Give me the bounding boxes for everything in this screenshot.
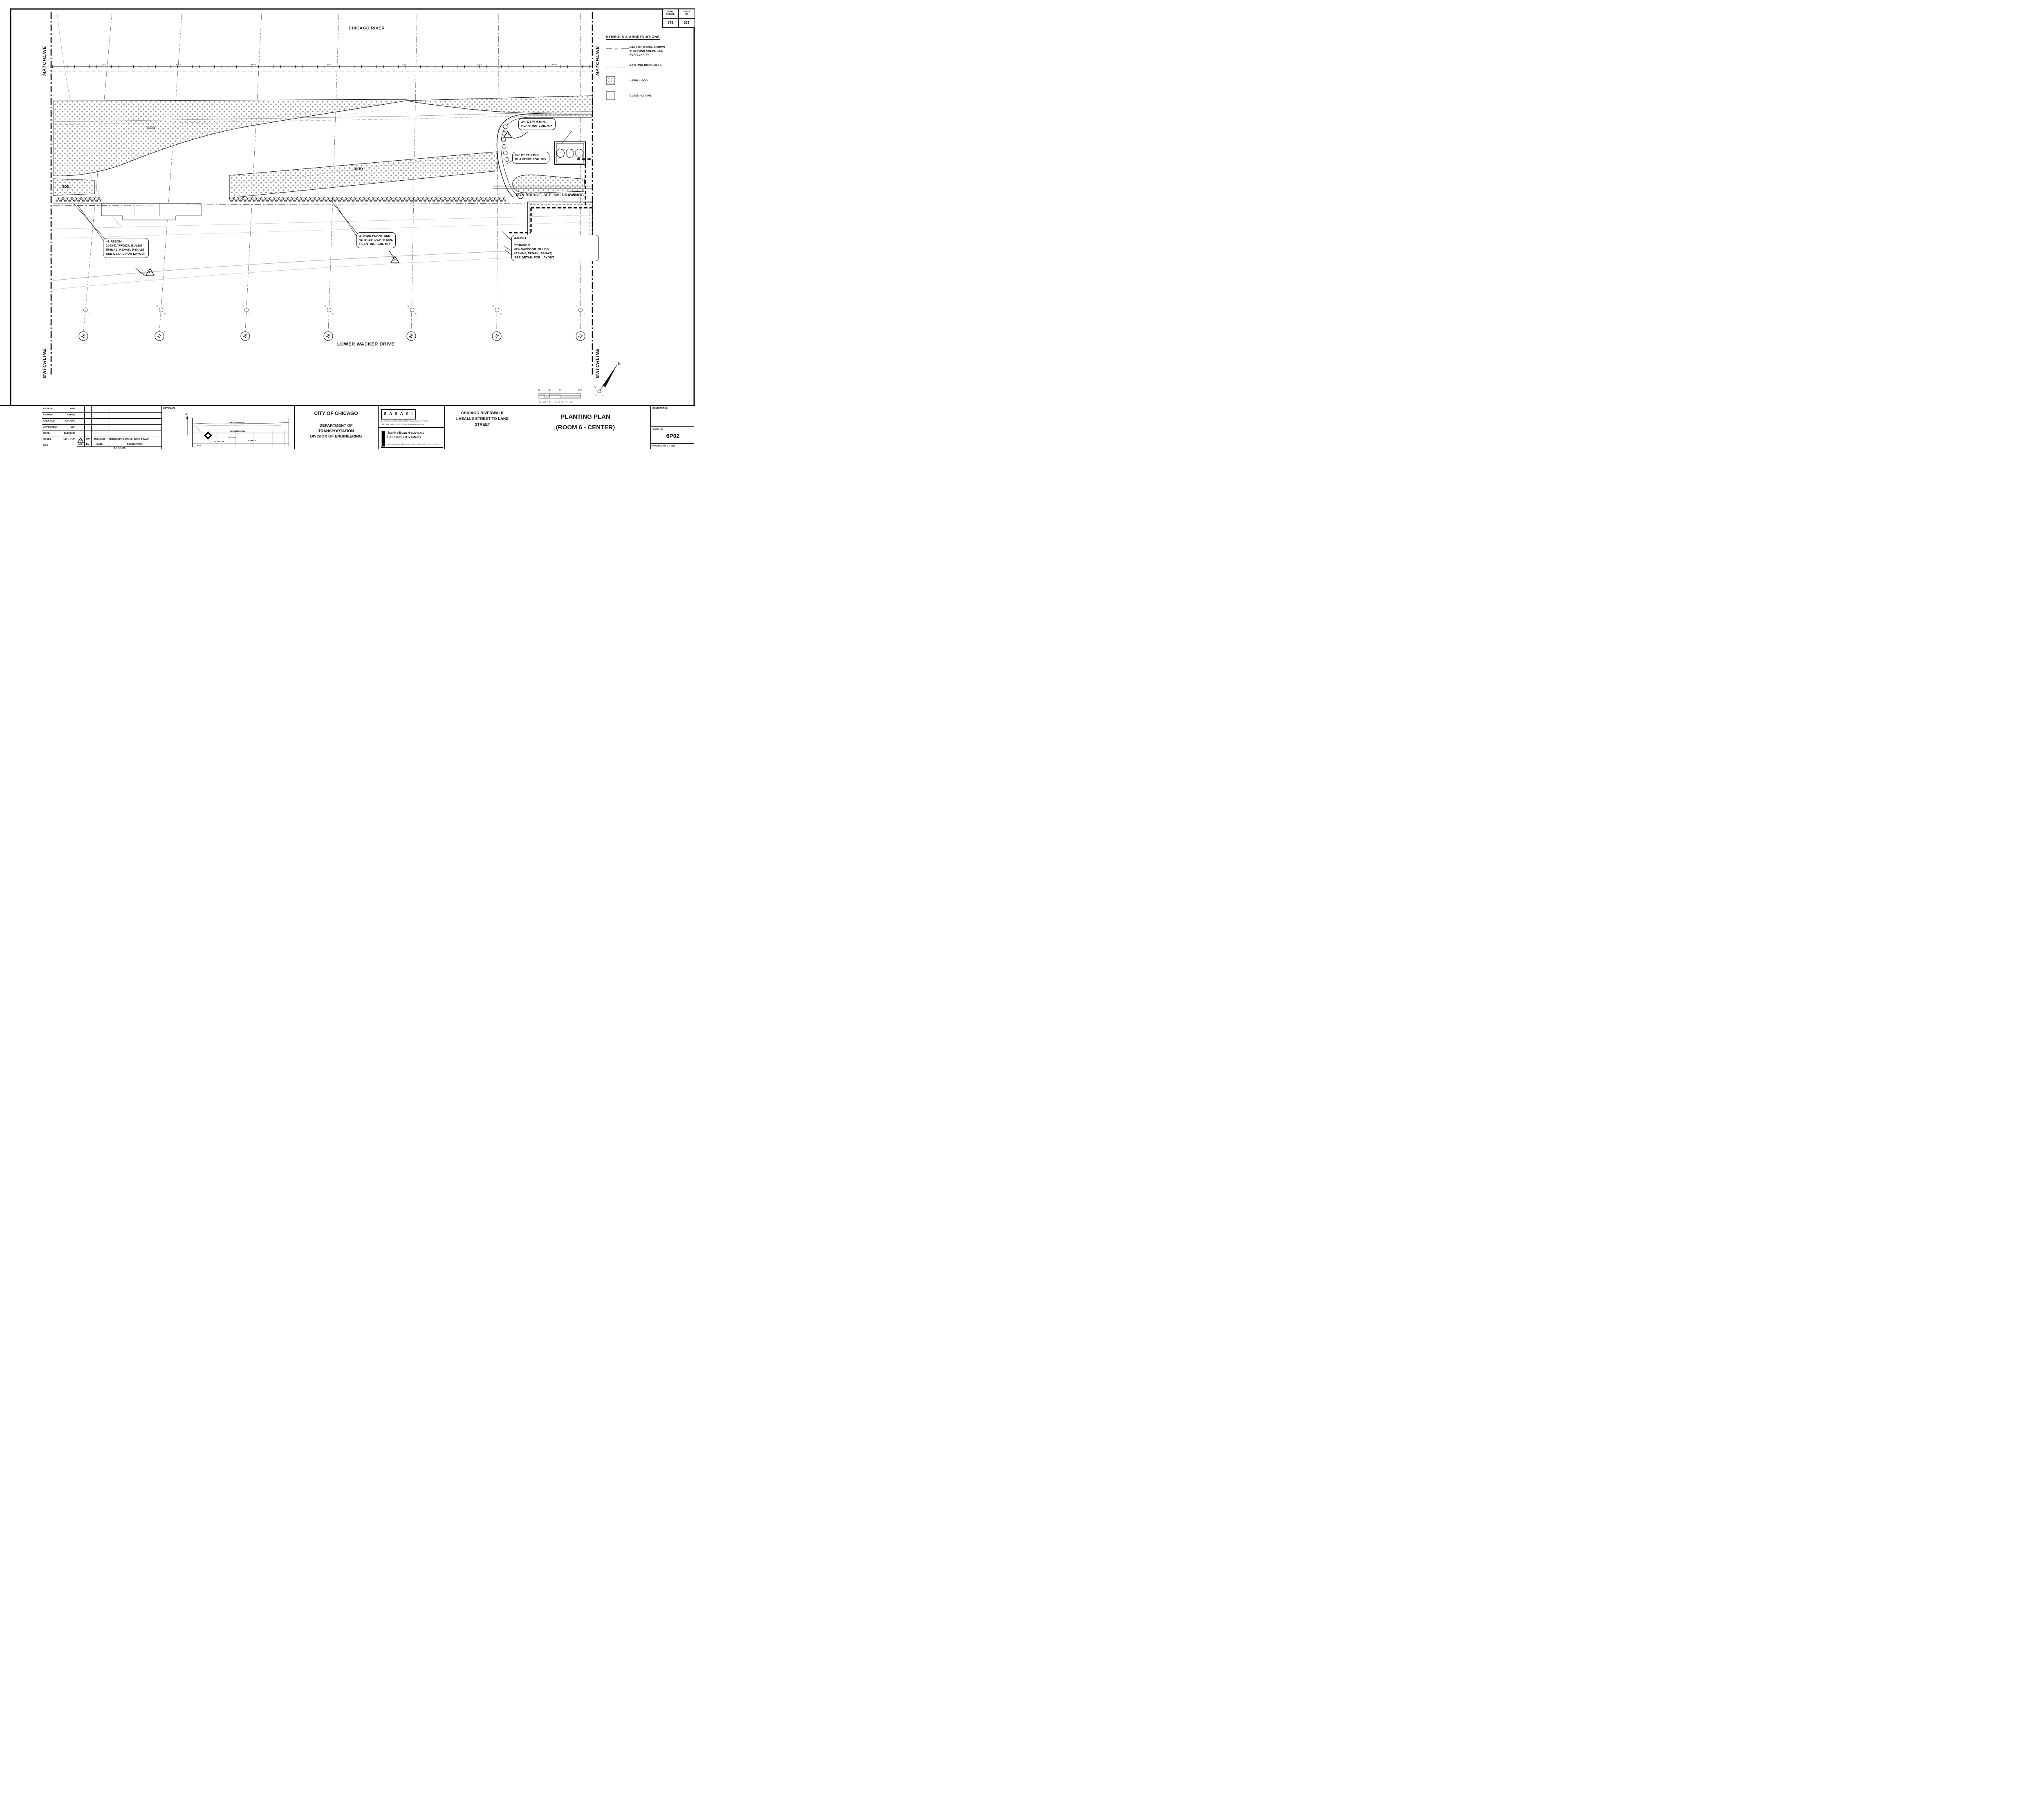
- callout-line: 43-R6SON: [106, 240, 146, 244]
- matchline-label-top-left: MATCHLINE: [42, 46, 47, 76]
- limit-of-work-symbol: LOW: [606, 45, 630, 53]
- scale-bar: 0' 4' 8' 16' SCALE: 1/8"= 1'-0": [538, 388, 582, 404]
- sasaki-contacts: t 617 926 3300 f 617 924 2748 w www.sasa…: [381, 423, 424, 425]
- low-marker: LOW: [401, 64, 406, 66]
- drawn-value: CM/SW: [53, 414, 75, 416]
- key-plan-map: CHICAGO RIVER WACKER DRIVE WELLS LASALLE…: [192, 418, 289, 447]
- file-label: FILE:: [43, 444, 49, 447]
- approved-value: SEH: [53, 426, 75, 428]
- drawing-sheet: 16 17 18 19 20 21 22: [0, 0, 695, 450]
- date-label: DATE:: [43, 432, 50, 435]
- revisions-footer: REVISIONS: [77, 447, 161, 449]
- sheet-no-label: SHEET NO.: [652, 428, 663, 431]
- sheet-title-1: PLANTING PLAN: [560, 413, 610, 420]
- callout-line: 4-R6VIJ: [514, 236, 596, 240]
- legend-text: FOR CLARITY: [630, 53, 665, 57]
- map-franklin-label: FRANKLIN: [214, 440, 224, 443]
- total-sheets-header: SHEETS: [663, 13, 678, 16]
- revision-header-description: DESCRIPTION: [108, 443, 161, 446]
- callout-left: 43-R6SON 1008-DAFFODIL BULBS (R6NAJ, R6N…: [103, 238, 149, 258]
- project-name: CHICAGO RIVERWALK: [461, 411, 504, 415]
- scale-label: SCALE:: [43, 438, 52, 441]
- callout-right: 4-R6VIJ 27-R6SON 624-DAFFODIL BULBS (R6N…: [511, 235, 599, 261]
- callout-line: (R6NAJ, R6NAK, R6NAS): [514, 251, 596, 256]
- scale-tick-16: 16': [578, 388, 582, 392]
- matchline-label-top-right: MATCHLINE: [595, 46, 600, 76]
- revision-triangle: 14: [390, 256, 399, 263]
- design-label: DESIGN:: [43, 408, 53, 410]
- project-no: PROJECT NO. E-0-621b: [652, 445, 675, 447]
- revision-triangle-number: 14: [503, 133, 512, 136]
- project-extent-2: STREET: [475, 422, 490, 427]
- sod-regions: [53, 96, 592, 198]
- planting-strips: [56, 197, 506, 202]
- low-marker: LOW: [101, 64, 105, 66]
- matchlines: [51, 12, 592, 376]
- revision-triangle-number: 14: [146, 271, 155, 274]
- drawn-label: DRAWN:: [43, 414, 53, 416]
- legend-text: CLIMBING VINE: [630, 94, 652, 98]
- legend-text: LIMIT OF WORK, SHOWN: [630, 45, 665, 49]
- callout-line: 624-DAFFODIL BULBS: [514, 247, 596, 251]
- river-label: CHICAGO RIVER: [349, 26, 385, 31]
- contract-no-label: CONTRACT NO.: [652, 407, 668, 410]
- map-lasalle-label: LASALLE: [247, 440, 256, 442]
- legend-title: SYMBOLS & ABBREVIATIONS: [606, 35, 660, 40]
- walkway-lines: [53, 186, 592, 220]
- sheet-title-2: (ROOM 6 - CENTER): [556, 424, 615, 431]
- date-value: 10/17/2014: [53, 432, 75, 435]
- callout-line: PLANTING SOIL MIX: [515, 157, 547, 162]
- callout-line: PLANTING SOIL MIX: [359, 242, 393, 246]
- key-plan-north-label: N: [186, 413, 187, 416]
- sheet-no-header: NO.: [679, 13, 695, 16]
- map-wells-label: WELLS: [229, 436, 236, 439]
- map-wacker-label: WACKER DRIVE: [230, 430, 246, 433]
- agency-name: CITY OF CHICAGO: [314, 410, 358, 416]
- project-extent-1: LASALLE STREET TO LAKE: [456, 417, 509, 421]
- scale-caption: SCALE: 1/8"= 1'-0": [539, 400, 574, 404]
- sheet-no-value: 338: [679, 21, 695, 25]
- callout-line: SEE DETAIL FOR LAYOUT: [514, 256, 596, 260]
- revision-header-date: DATE: [91, 443, 108, 446]
- planter-with-trees: [555, 142, 585, 165]
- revision-entry-by: SW: [84, 438, 91, 441]
- sod-label-mid: SOD: [355, 167, 363, 171]
- jacobs-ryan-block: Jacobs/Ryan Associates Landscape Archite…: [381, 430, 443, 448]
- design-value: GMF: [53, 408, 75, 410]
- sod-label-small: SOD: [62, 185, 69, 188]
- legend-text: EXISTING DOCK EDGE: [630, 63, 661, 67]
- revision-header-by: BY: [84, 443, 91, 446]
- low-marker: LOW: [326, 64, 331, 66]
- callout-line: 2' WIDE PLANT BED: [359, 234, 393, 238]
- revision-entry-date: 03/10/2016: [91, 438, 108, 441]
- low-marker: LOW: [477, 64, 482, 66]
- lawn-sod-symbol: [606, 76, 630, 87]
- legend-item-dock-edge: EXISTING DOCK EDGE: [606, 63, 694, 71]
- legend-item-climbing-vine: CLIMBING VINE: [606, 91, 694, 102]
- grid-bubbles: 16 17 18 19 20 21 22: [79, 332, 585, 341]
- scale-value: 1/8" = 1'-0": [53, 438, 75, 441]
- legend-item-lawn-sod: LAWN – SOD: [606, 76, 694, 87]
- sasaki-address: 64 PLEASANT STREET, WATERTOWN, MA 02472 …: [381, 420, 428, 422]
- total-sheets-value: 378: [663, 21, 678, 25]
- callout-line: 24" DEPTH MIN.: [521, 120, 553, 124]
- jacobs-ryan-address: 1527 North Sandburg Terrace Chicago , Il…: [387, 444, 439, 445]
- jacobs-ryan-name: Jacobs/Ryan Associates: [387, 431, 424, 435]
- climbing-vine-symbol: [606, 91, 630, 102]
- legend-item-limit-of-work: LOW LIMIT OF WORK, SHOWN 1' BEYOND VOLPE…: [606, 45, 694, 57]
- key-plan-label: KEY PLAN:: [163, 407, 175, 410]
- revision-entry-description: DESIGN REVISION #14 - ROOM 6 RAMP: [109, 438, 161, 441]
- callout-line: 27-R6SON: [514, 243, 596, 247]
- jacobs-ryan-title: Landscape Architects: [387, 435, 421, 439]
- agency-division: DIVISION OF ENGINEERING: [310, 434, 362, 439]
- low-marker: LOW: [552, 64, 557, 66]
- low-marker: LOW: [176, 64, 181, 66]
- callout-line: 24" DEPTH MIN.: [515, 153, 547, 157]
- north-label: N: [618, 362, 621, 366]
- scale-tick-8: 8': [559, 388, 561, 392]
- callout-soil-a: 24" DEPTH MIN. PLANTING SOIL MIX: [518, 118, 556, 130]
- road-label: LOWER WACKER DRIVE: [337, 342, 394, 347]
- revision-triangle-number: 14: [390, 258, 399, 261]
- revision-header-no: NO.: [77, 443, 84, 446]
- callout-line: (R6NAJ, R6NAK, R6NAS): [106, 248, 146, 252]
- utility-circles: [81, 305, 585, 314]
- matchline-label-bottom-right: MATCHLINE: [595, 348, 600, 378]
- matchline-label-bottom-left: MATCHLINE: [42, 348, 47, 378]
- checked-value: SMC/ZPC: [53, 420, 75, 422]
- low-symbol-label: LOW: [614, 48, 618, 50]
- scale-tick-4: 4': [548, 388, 551, 392]
- dock-edge-symbol: [606, 63, 630, 71]
- bridge-note: FOR BRIDGE, SEE 'SM' DRAWINGS: [516, 193, 584, 197]
- low-marker: LOW: [251, 64, 256, 66]
- revision-triangle: 14: [146, 268, 155, 276]
- sasaki-logo: S A S A K I: [381, 409, 416, 419]
- agency-dept-2: TRANSPORTATION: [318, 429, 354, 433]
- scale-tick-0: 0': [538, 388, 540, 392]
- callout-soil-b: 24" DEPTH MIN. PLANTING SOIL MIX: [512, 152, 549, 164]
- sheet-number-table: TOTAL SHEETS SHEET NO. 378 338: [662, 9, 695, 28]
- callout-line: PLANTING SOIL MIX: [521, 124, 553, 128]
- sheet-number: 6P02: [666, 433, 680, 439]
- legend: SYMBOLS & ABBREVIATIONS LOW LIMIT OF WOR…: [606, 33, 694, 102]
- revision-triangle: 14: [503, 131, 512, 138]
- callout-line: SEE DETAIL FOR LAYOUT: [106, 252, 146, 256]
- legend-text: 1' BEYOND VOLPE LINE: [630, 49, 665, 54]
- callout-mid: 2' WIDE PLANT BED WITH 24" DEPTH MIN. PL…: [356, 232, 396, 248]
- legend-text: LAWN – SOD: [630, 79, 648, 83]
- title-block: DESIGN: GMF DRAWN: CM/SW CHECKED: SMC/ZP…: [0, 405, 695, 449]
- sod-label-big: SOD: [147, 126, 155, 130]
- revision-entry-no: 14: [77, 439, 84, 442]
- map-lake-label: LAKE: [196, 444, 202, 447]
- callout-line: 1008-DAFFODIL BULBS: [106, 244, 146, 248]
- plan-linework: 16 17 18 19 20 21 22: [0, 0, 695, 450]
- agency-dept-1: DEPARTMENT OF: [319, 424, 352, 428]
- map-river-label: CHICAGO RIVER: [229, 422, 244, 424]
- callout-line: WITH 24" DEPTH MIN.: [359, 238, 393, 242]
- key-plan-north-arrow-icon: N: [185, 412, 190, 437]
